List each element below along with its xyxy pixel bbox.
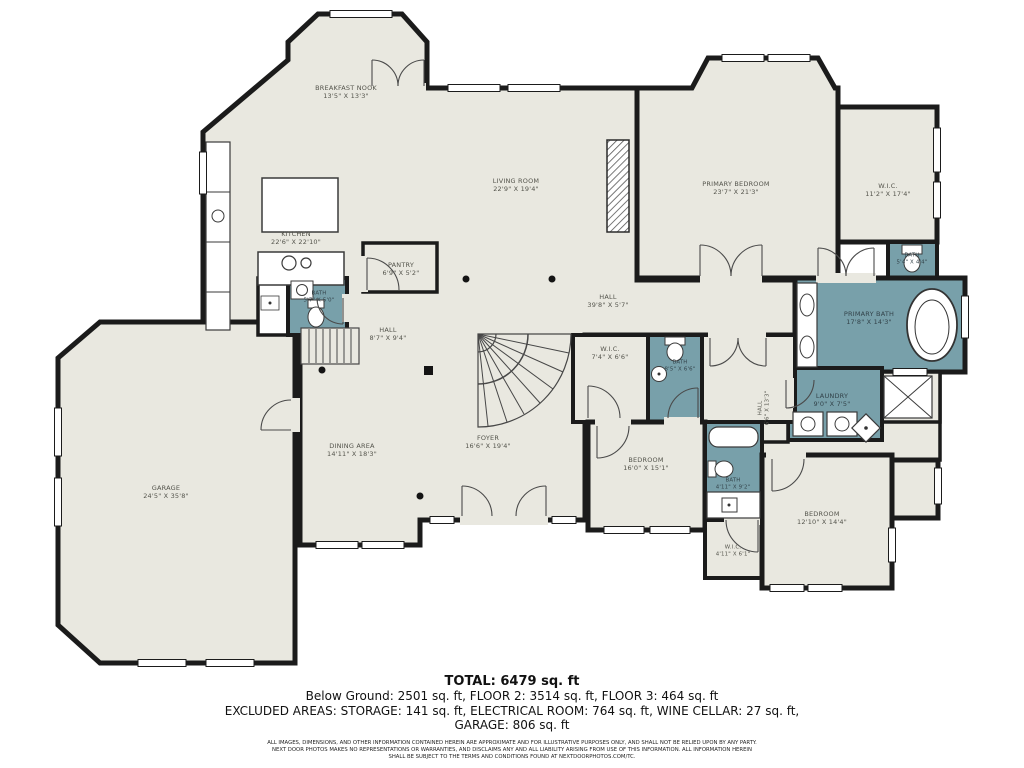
primary-bedroom-floor (637, 58, 838, 278)
room-name: HALL (757, 401, 763, 416)
room-name: BREAKFAST NOOK (315, 84, 377, 92)
primary-vanity (797, 283, 817, 367)
primary-wic-floor (838, 107, 937, 242)
kitchen-sink-counter (258, 252, 344, 285)
room-dims: 24'5" X 35'8" (143, 492, 189, 500)
room-label-bedroom-middle: BEDROOM16'0" X 15'1" (623, 456, 669, 472)
bedroom-right-bump (892, 460, 938, 518)
room-dims: 5'4" X 4'4" (897, 259, 928, 266)
room-name: W.I.C. (600, 345, 620, 353)
room-label-bedroom-right: BEDROOM12'10" X 14'4" (797, 510, 847, 526)
garage-area-line: GARAGE: 806 sq. ft (0, 718, 1024, 733)
fireplace (607, 140, 629, 232)
kitchen-bath-toilet (308, 307, 324, 327)
room-name: LAUNDRY (816, 392, 848, 400)
dryer (827, 412, 857, 436)
room-name: PRIMARY BATH (844, 310, 894, 318)
room-label-hall-long: HALL39'8" X 5'7" (587, 293, 628, 309)
room-dims: 9'0" X 7'5" (814, 400, 851, 408)
room-dims: 23'7" X 21'3" (702, 188, 769, 196)
room-dims: 13'5" X 13'3" (315, 92, 377, 100)
room-label-bath-middle: BATH8'5" X 6'6" (665, 359, 696, 372)
room-name: W.I.C. (725, 544, 741, 550)
room-name: PRIMARY BEDROOM (702, 180, 769, 188)
room-label-breakfast-nook: BREAKFAST NOOK13'5" X 13'3" (315, 84, 377, 100)
room-label-garage: GARAGE24'5" X 35'8" (143, 484, 189, 500)
bath-bottom-vanity (707, 492, 760, 518)
room-name: BEDROOM (804, 510, 839, 518)
room-name: DINING AREA (329, 442, 374, 450)
room-label-wic-bottom: W.I.C.4'11" X 6'1" (716, 544, 751, 557)
room-label-foyer: FOYER16'6" X 19'4" (465, 434, 511, 450)
room-dims: 16'6" X 19'4" (465, 442, 511, 450)
room-dims: 17'8" X 14'3" (844, 318, 894, 326)
room-name: FOYER (477, 434, 499, 442)
washer (793, 412, 823, 436)
excluded-area-line: EXCLUDED AREAS: STORAGE: 141 sq. ft, ELE… (0, 704, 1024, 719)
room-name: HALL (599, 293, 616, 301)
floor-plan-drawing (0, 0, 1024, 670)
room-label-hall-stairs: HALL8'7" X 9'4" (370, 326, 407, 342)
room-name: BATH (311, 290, 326, 296)
room-name: PANTRY (388, 261, 414, 269)
kitchen-island (262, 178, 338, 232)
room-label-dining-area: DINING AREA14'11" X 18'3" (327, 442, 377, 458)
room-dims: 11'2" X 17'4" (865, 190, 911, 198)
room-name: HALL (379, 326, 396, 334)
room-name: LIVING ROOM (493, 177, 539, 185)
disclaimer-line-1: ALL IMAGES, DIMENSIONS, AND OTHER INFORM… (0, 740, 1024, 747)
room-dims: 22'9" X 19'4" (493, 185, 539, 193)
floors-area-line: Below Ground: 2501 sq. ft, FLOOR 2: 3514… (0, 689, 1024, 704)
room-label-hall-vertical: HALL6'6" X 13'3" (757, 391, 770, 426)
room-label-primary-bedroom: PRIMARY BEDROOM23'7" X 21'3" (702, 180, 769, 196)
room-name: GARAGE (152, 484, 180, 492)
room-dims: 12'10" X 14'4" (797, 518, 847, 526)
room-dims: 6'6" X 13'3" (764, 391, 771, 426)
room-dims: 4'11" X 9'2" (716, 484, 751, 491)
room-name: BATH (904, 252, 919, 258)
floor-plan-page: BREAKFAST NOOK13'5" X 13'3" KITCHEN22'6"… (0, 0, 1024, 768)
room-name: BATH (725, 477, 740, 483)
room-dims: 4'11" X 6'1" (716, 551, 751, 558)
room-dims: 14'11" X 18'3" (327, 450, 377, 458)
closet-hall-room (702, 335, 795, 422)
room-name: W.I.C. (878, 182, 898, 190)
room-name: BATH (672, 359, 687, 365)
room-dims: 39'8" X 5'7" (587, 301, 628, 309)
bath-bottom-tub (709, 427, 758, 447)
room-dims: 8'7" X 9'4" (370, 334, 407, 342)
room-label-primary-wic: W.I.C.11'2" X 17'4" (865, 182, 911, 198)
room-label-primary-bath: PRIMARY BATH17'8" X 14'3" (844, 310, 894, 326)
room-dims: 5'7" X 5'0" (304, 297, 335, 304)
room-label-pantry: PANTRY6'9" X 5'2" (383, 261, 420, 277)
room-dims: 8'5" X 6'6" (665, 366, 696, 373)
room-name: KITCHEN (281, 230, 311, 238)
area-summary: TOTAL: 6479 sq. ft Below Ground: 2501 sq… (0, 674, 1024, 761)
disclaimer: ALL IMAGES, DIMENSIONS, AND OTHER INFORM… (0, 740, 1024, 761)
room-dims: 7'4" X 6'6" (592, 353, 629, 361)
room-dims: 22'6" X 22'10" (271, 238, 321, 246)
disclaimer-line-2: NEXT DOOR PHOTOS MAKES NO REPRESENTATION… (0, 747, 1024, 754)
room-label-living-room: LIVING ROOM22'9" X 19'4" (493, 177, 539, 193)
bedroom-middle-room (588, 422, 705, 530)
disclaimer-line-3: SHALL BE SUBJECT TO THE TERMS AND CONDIT… (0, 754, 1024, 761)
room-label-kitchen: KITCHEN22'6" X 22'10" (271, 230, 321, 246)
room-dims: 16'0" X 15'1" (623, 464, 669, 472)
room-dims: 6'9" X 5'2" (383, 269, 420, 277)
room-label-laundry: LAUNDRY9'0" X 7'5" (814, 392, 851, 408)
total-area-line: TOTAL: 6479 sq. ft (0, 674, 1024, 689)
room-label-bath-top-right: BATH5'4" X 4'4" (897, 252, 928, 265)
bath-bottom-toilet (715, 461, 733, 477)
room-label-bath-kitchen: BATH5'7" X 5'0" (304, 290, 335, 303)
kitchen-wall-counter (206, 142, 230, 330)
room-label-bath-bottom: BATH4'11" X 9'2" (716, 477, 751, 490)
room-label-wic-middle: W.I.C.7'4" X 6'6" (592, 345, 629, 361)
room-name: BEDROOM (628, 456, 663, 464)
